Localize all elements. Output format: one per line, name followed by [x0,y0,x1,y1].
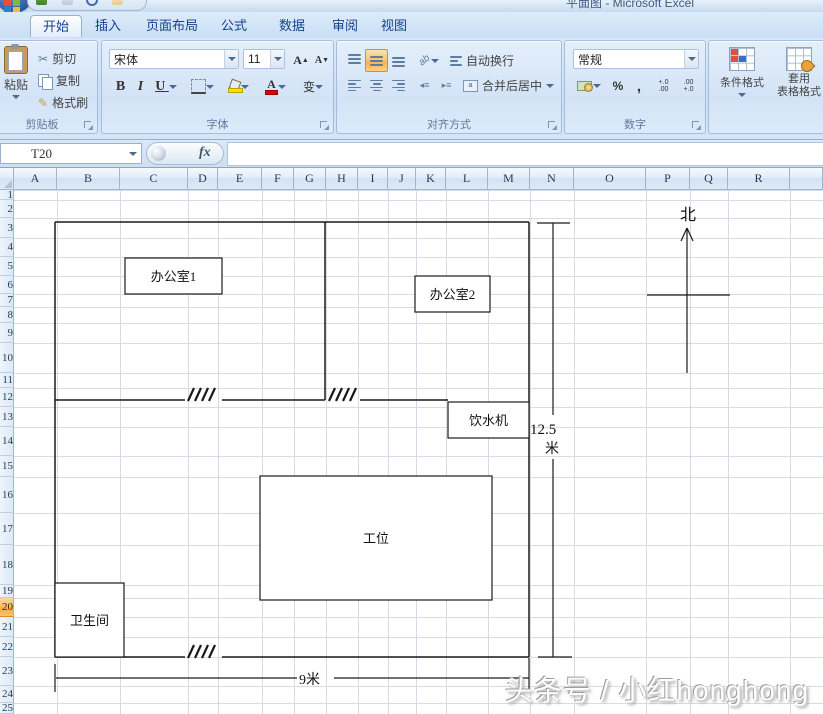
column-header-G[interactable]: G [294,168,326,190]
decrease-font-icon: A [315,55,322,66]
paste-button[interactable]: 粘贴 [1,45,31,100]
column-header-Q[interactable]: Q [690,168,728,190]
column-header-D[interactable]: D [188,168,218,190]
fx-icon: fx [199,145,211,161]
font-size-select[interactable]: 11 [243,49,285,69]
fill-color-button[interactable] [221,75,256,98]
tab-r4[interactable]: 数据 [268,15,316,37]
dimension-vertical-value: 12.5 [530,422,556,438]
phonetic-button[interactable]: 变 [295,75,331,98]
increase-indent-button[interactable]: ▸≡ [435,74,458,97]
number-format-value: 常规 [574,51,684,68]
form-icon[interactable] [112,0,123,5]
group-clipboard: 粘贴 ✂ 剪切 复制 ✎ 格式刷 剪贴板 [0,40,98,134]
fill-color-icon [228,80,241,93]
align-top-button[interactable] [343,49,366,72]
align-left-icon [348,80,361,91]
accounting-icon [577,80,593,92]
function-sphere-icon [151,146,166,161]
row-header-2[interactable]: 2 [0,200,14,218]
row-header-24[interactable]: 24 [0,686,14,703]
row-header-21[interactable]: 21 [0,617,14,637]
decrease-indent-button[interactable]: ◂≡ [413,74,436,97]
font-dialog-launcher[interactable] [319,120,330,131]
select-all-corner[interactable] [0,168,14,190]
column-header-C[interactable]: C [120,168,188,190]
format-painter-label: 格式刷 [52,94,88,111]
font-name-select[interactable]: 宋体 [109,49,239,69]
title-bar: 平面图 - Microsoft Excel [0,0,823,12]
align-middle-icon [370,54,383,67]
column-header-E[interactable]: E [218,168,262,190]
door-mark-slash[interactable] [195,388,201,401]
door-mark-slash[interactable] [336,388,342,401]
merge-center-button[interactable]: a 合并后居中 [460,76,557,95]
clipboard-dialog-launcher[interactable] [83,120,94,131]
column-header-A[interactable]: A [14,168,57,190]
wrap-text-icon [450,56,462,66]
decrease-decimal-button[interactable]: .00+.0 [676,75,701,97]
number-format-select[interactable]: 常规 [573,49,699,69]
row-header-13[interactable]: 13 [0,407,14,427]
column-header-M[interactable]: M [488,168,530,190]
watermark-text: 头条号 / 小红honghong [505,669,809,709]
door-mark-slash[interactable] [343,388,349,401]
number-format-dropdown-icon[interactable] [684,50,698,68]
underline-button[interactable]: U [150,75,182,98]
orientation-icon: ab [417,53,433,69]
door-mark-slash[interactable] [209,388,215,401]
row-header-3[interactable]: 3 [0,218,14,238]
north-arrowhead[interactable] [681,228,687,241]
row-header-17[interactable]: 17 [0,513,14,545]
column-header-H[interactable]: H [326,168,358,190]
door-mark-slash[interactable] [195,645,201,658]
align-right-button[interactable] [387,74,410,97]
merge-center-label: 合并后居中 [482,77,542,94]
column-header-B[interactable]: B [57,168,120,190]
format-painter-button[interactable]: ✎ 格式刷 [35,93,91,112]
wrap-text-button[interactable]: 自动换行 [447,51,517,70]
column-header-K[interactable]: K [416,168,446,190]
font-color-button[interactable]: A [258,75,293,98]
column-header-J[interactable]: J [388,168,416,190]
row-header-4[interactable]: 4 [0,238,14,257]
group-styles: 条件格式 套用表格格式 [708,40,823,134]
align-bottom-icon [392,54,405,67]
paste-label: 粘贴 [4,76,28,93]
cut-label: 剪切 [52,50,76,67]
increase-indent-icon: ▸≡ [442,80,452,91]
cut-button[interactable]: ✂ 剪切 [35,49,79,68]
conditional-formatting-label: 条件格式 [720,74,764,90]
increase-decimal-button[interactable]: +.0.00 [651,75,676,97]
font-group-label: 字体 [102,118,333,132]
bold-button[interactable]: B [110,75,131,98]
font-color-dropdown-icon[interactable] [278,85,286,89]
underline-icon: U [155,79,165,95]
copy-icon [38,74,52,88]
column-header-partial[interactable] [790,168,823,190]
tab-r5[interactable]: 审阅 [322,15,368,37]
workstation-box-label: 工位 [363,531,389,546]
row-header-5[interactable]: 5 [0,257,14,276]
column-header-R[interactable]: R [728,168,790,190]
borders-icon [191,79,206,94]
door-mark-slash[interactable] [202,388,208,401]
font-size-value: 11 [244,52,270,66]
accounting-dropdown-icon[interactable] [593,84,601,88]
tab-r3[interactable]: 公式 [211,15,257,37]
font-size-dropdown-icon[interactable] [270,50,284,68]
conditional-formatting-icon [729,47,755,71]
merge-center-dropdown-icon[interactable] [546,84,554,88]
format-as-table-label: 套用表格格式 [777,73,821,99]
tab-r2[interactable]: 页面布局 [134,15,210,37]
row-header-16[interactable]: 16 [0,477,14,513]
undo-icon[interactable] [86,0,98,6]
door-mark-slash[interactable] [202,645,208,658]
row-header-18[interactable]: 18 [0,545,14,585]
copy-label: 复制 [56,72,80,89]
row-header-9[interactable]: 9 [0,323,14,343]
align-middle-button[interactable] [365,49,388,72]
excel-window: 办公室1办公室2饮水机工位卫生间12.5米9米北 头条号 / 小红honghon… [0,0,823,714]
phonetic-dropdown-icon[interactable] [315,85,323,89]
decrease-indent-icon: ◂≡ [420,80,430,91]
comma-style-button[interactable]: , [629,75,649,97]
insert-function-button[interactable]: fx [146,142,224,165]
phonetic-icon: 变 [303,78,315,95]
comma-icon: , [637,78,641,95]
name-box-dropdown-icon[interactable] [129,152,137,156]
conditional-formatting-button[interactable]: 条件格式 [713,46,771,98]
office-logo-blue [4,7,11,12]
wrap-text-label: 自动换行 [466,52,514,69]
column-headers: ABCDEFGHIJKLMNOPQR [14,168,823,190]
row-header-14[interactable]: 14 [0,427,14,456]
row-header-6[interactable]: 6 [0,276,14,294]
column-header-L[interactable]: L [446,168,488,190]
increase-font-icon: A [293,53,302,68]
increase-font-button[interactable]: A▲ [290,49,312,71]
conditional-formatting-dropdown-icon[interactable] [738,93,746,97]
font-name-dropdown-icon[interactable] [224,50,238,68]
door-mark-slash[interactable] [350,388,356,401]
orientation-button[interactable]: ab [413,49,445,72]
align-bottom-button[interactable] [387,49,410,72]
format-painter-icon: ✎ [38,96,48,110]
number-dialog-launcher[interactable] [691,120,702,131]
quick-access-toolbar [27,0,147,11]
font-name-value: 宋体 [110,51,224,68]
align-right-icon [392,80,405,91]
align-center-icon [370,80,383,91]
underline-dropdown-icon[interactable] [169,85,177,89]
office2-box-label: 办公室2 [430,287,476,302]
format-as-table-icon [786,47,812,71]
row-header-22[interactable]: 22 [0,637,14,657]
decrease-font-button[interactable]: A▼ [311,49,333,71]
group-alignment: ab 自动换行 ◂≡ ▸≡ a 合 [336,40,562,134]
accounting-format-button[interactable] [573,75,605,97]
door-mark-slash[interactable] [329,388,335,401]
row-header-15[interactable]: 15 [0,456,14,477]
row-headers: 1234567891011121314151617181920212223242… [0,190,14,714]
ribbon: 粘贴 ✂ 剪切 复制 ✎ 格式刷 剪贴板 宋体 [0,38,823,140]
column-header-N[interactable]: N [530,168,574,190]
row-header-11[interactable]: 11 [0,373,14,388]
window-title: 平面图 - Microsoft Excel [566,0,694,11]
water-dispenser-box-label: 饮水机 [469,413,508,428]
align-center-button[interactable] [365,74,388,97]
italic-button[interactable]: I [131,75,150,98]
scissors-icon: ✂ [38,52,48,66]
bold-icon: B [116,79,125,95]
column-header-I[interactable]: I [358,168,388,190]
column-header-F[interactable]: F [262,168,294,190]
office1-box-label: 办公室1 [151,269,197,284]
decrease-decimal-icon: .00+.0 [684,79,694,93]
column-header-O[interactable]: O [574,168,646,190]
borders-dropdown-icon[interactable] [206,85,214,89]
align-top-icon [348,54,361,67]
north-label: 北 [680,206,696,224]
paste-icon [4,46,28,74]
row-header-25[interactable]: 25 [0,703,14,714]
office-logo-yellow [13,7,20,12]
dimension-horizontal-value: 9米 [299,672,320,688]
save-icon[interactable] [62,0,73,5]
row-header-10[interactable]: 10 [0,343,14,373]
italic-icon: I [138,79,143,95]
row-header-23[interactable]: 23 [0,657,14,686]
alignment-dialog-launcher[interactable] [547,120,558,131]
row-header-8[interactable]: 8 [0,307,14,323]
percent-icon: % [613,79,624,93]
name-box-value: T20 [1,146,129,162]
number-group-label: 数字 [565,118,705,132]
increase-decimal-icon: +.0.00 [659,79,669,93]
format-as-table-button[interactable]: 套用表格格式 [769,46,823,100]
paste-dropdown-icon[interactable] [12,95,20,99]
office-logo-green [13,0,20,6]
tab-r1[interactable]: 插入 [85,15,131,37]
column-header-P[interactable]: P [646,168,690,190]
group-number: 常规 % , +.0.00 .00+.0 数字 [564,40,706,134]
door-mark-slash[interactable] [209,645,215,658]
percent-style-button[interactable]: % [607,75,629,97]
ribbon-tab-strip: 开始插入页面布局公式数据审阅视图 [0,12,823,38]
office-logo-red [4,0,11,6]
tab-r6[interactable]: 视图 [372,15,416,37]
restroom-box-label: 卫生间 [70,613,109,628]
font-color-icon: A [265,79,278,94]
row-header-20[interactable]: 20 [0,598,14,617]
tab-home[interactable]: 开始 [30,15,82,37]
row-header-7[interactable]: 7 [0,294,14,307]
row-header-12[interactable]: 12 [0,388,14,407]
merge-center-icon: a [463,80,478,92]
align-left-button[interactable] [343,74,366,97]
formula-bar: T20 fx [0,140,823,168]
row-header-19[interactable]: 19 [0,585,14,598]
copy-button[interactable]: 复制 [35,71,83,90]
alignment-group-label: 对齐方式 [337,118,561,132]
group-font: 宋体 11 A▲ A▼ B I U [101,40,334,134]
name-box[interactable]: T20 [0,143,142,164]
formula-input[interactable] [227,142,823,166]
dimension-vertical-unit: 米 [545,441,559,457]
excel-file-icon[interactable] [36,0,47,5]
row-header-1[interactable]: 1 [0,190,14,200]
borders-button[interactable] [186,75,219,98]
